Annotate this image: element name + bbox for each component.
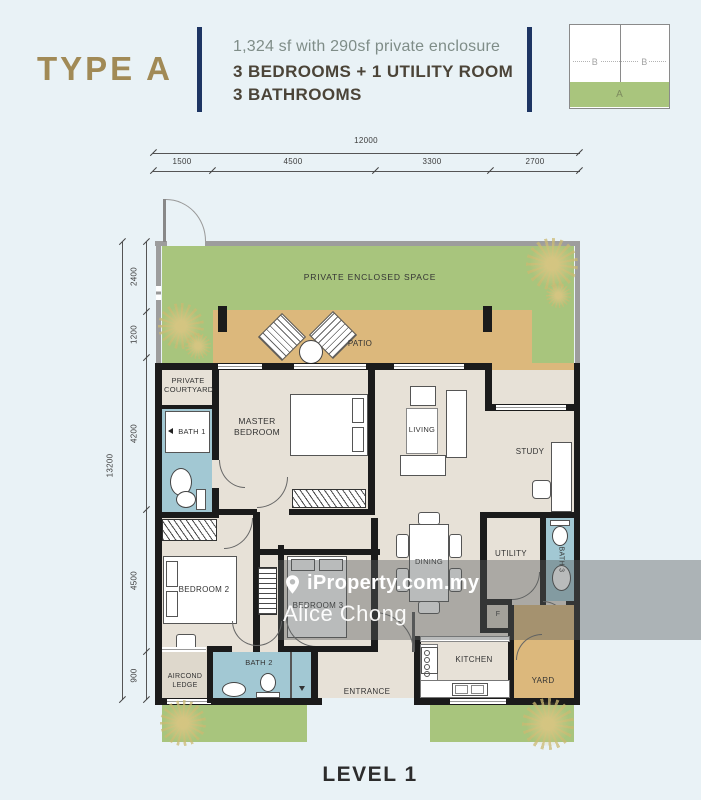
dim-top-seg2: 4500 [263, 157, 323, 166]
plant-icon [185, 333, 211, 359]
sink-basin [471, 685, 484, 694]
sofa [446, 390, 467, 458]
stove-burner [424, 671, 430, 677]
chair [532, 480, 551, 499]
toilet-tank [256, 692, 280, 698]
patio-post [218, 306, 227, 332]
area-text: 1,324 sf with 290sf private enclosure [233, 38, 500, 56]
patio-table [299, 340, 323, 364]
dim-tick [576, 167, 583, 174]
window [496, 405, 566, 410]
dim-tick [143, 696, 150, 703]
sofa [400, 455, 446, 476]
window [450, 699, 506, 704]
dim-line [153, 153, 580, 154]
wall [253, 549, 380, 555]
fence-gate-window [156, 286, 161, 300]
keyplan-unit-b1: B [590, 57, 600, 67]
dim-left-seg3: 4200 [130, 409, 139, 459]
plant-icon [160, 700, 206, 746]
stove-burner [424, 650, 430, 656]
room-label-utility: UTILITY [486, 549, 536, 559]
dim-left-seg1: 2400 [130, 252, 139, 302]
fence [205, 241, 580, 246]
floorplan-page: TYPE A 1,324 sf with 290sf private enclo… [0, 0, 701, 800]
patio-post [483, 306, 492, 332]
room-label-aircond-ledge: AIRCOND LEDGE [161, 673, 209, 691]
wardrobe [162, 519, 217, 541]
room-label-entrance: ENTRANCE [336, 687, 398, 697]
toilet [176, 491, 196, 508]
level-label: LEVEL 1 [280, 763, 460, 787]
room-label-study: STUDY [505, 447, 555, 457]
dim-top-seg4: 2700 [505, 157, 565, 166]
room-label-bedroom2: BEDROOM 2 [172, 585, 236, 595]
gate-door-swing-arc [166, 199, 206, 241]
room-label-patio: PATIO [330, 339, 390, 349]
wardrobe [258, 567, 277, 615]
keyplan-unit-a-highlight: A [570, 82, 669, 107]
dim-left-seg2: 1200 [130, 310, 139, 360]
pillow [166, 561, 178, 587]
plant-icon [546, 283, 571, 308]
watermark-agent: Alice Chong [283, 601, 407, 627]
keyplan-unit-b2: B [639, 57, 649, 67]
sink [222, 682, 246, 697]
sink-basin [455, 685, 468, 694]
keyplan-divider [620, 25, 621, 82]
dim-top-total: 12000 [336, 136, 396, 145]
wardrobe [292, 489, 366, 508]
header-divider-right [527, 27, 532, 112]
shower-drain-icon [299, 686, 305, 691]
room-label-private-courtyard: PRIVATE COURTYARD [164, 376, 212, 395]
dim-left-seg5: 900 [130, 651, 139, 701]
dim-left-total: 13200 [106, 436, 115, 496]
wall [368, 370, 375, 509]
window [218, 364, 262, 369]
stove-burner [424, 657, 430, 663]
location-pin-icon [286, 575, 299, 594]
header-divider-left [197, 27, 202, 112]
config-line-1: 3 BEDROOMS + 1 UTILITY ROOM [233, 62, 513, 82]
wall [155, 512, 219, 518]
shower-divider [290, 652, 292, 698]
chair [396, 534, 409, 558]
type-label: TYPE A [37, 50, 173, 88]
room-label-bath2: BATH 2 [236, 658, 282, 667]
toilet-tank [196, 489, 206, 510]
wall [212, 370, 219, 460]
key-plan: B B A [569, 24, 670, 109]
room-label-pes: PRIVATE ENCLOSED SPACE [285, 272, 455, 283]
wall [289, 509, 375, 515]
room-label-kitchen: KITCHEN [448, 655, 500, 665]
stove-burner [424, 664, 430, 670]
window [394, 364, 464, 369]
dim-left-seg4: 4500 [130, 556, 139, 606]
dim-line [122, 242, 123, 700]
dim-line [153, 171, 580, 172]
wall [574, 363, 580, 705]
plant-icon [522, 698, 574, 750]
wall [219, 509, 257, 515]
dim-tick [576, 149, 583, 156]
toilet [260, 673, 276, 692]
wall [316, 646, 378, 652]
stove-icon [421, 647, 438, 674]
watermark-brand: iProperty.com.my [307, 572, 479, 595]
room-label-master-bedroom: MASTER BEDROOM [227, 416, 287, 437]
room-label-yard: YARD [520, 676, 566, 686]
dim-top-seg3: 3300 [402, 157, 462, 166]
window [294, 364, 366, 369]
armchair [410, 386, 436, 406]
dim-top-seg1: 1500 [152, 157, 212, 166]
dim-tick [119, 696, 126, 703]
fence [156, 241, 161, 363]
plant-icon [526, 238, 578, 290]
wall [311, 646, 318, 703]
chair [449, 534, 462, 558]
pillow [352, 427, 364, 452]
room-label-bath1: BATH 1 [172, 427, 212, 436]
wall [155, 363, 162, 705]
config-line-2: 3 BATHROOMS [233, 85, 362, 105]
pillow [352, 398, 364, 423]
room-label-living: LIVING [402, 425, 442, 434]
